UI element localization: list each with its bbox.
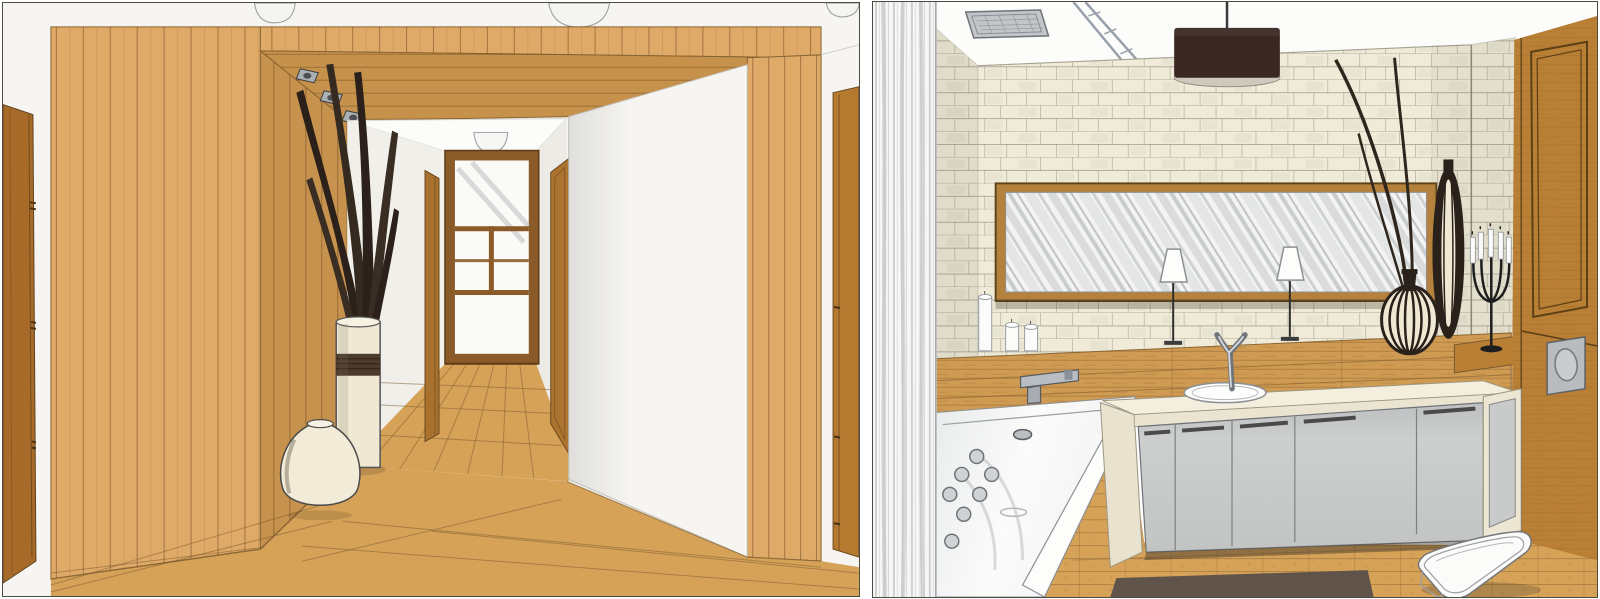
tub-drain (1014, 430, 1032, 440)
wood-panel-wall (51, 27, 261, 579)
mirror (996, 183, 1437, 309)
hallway-side-door (551, 158, 569, 453)
mirror-shadow (996, 299, 1437, 309)
flush-plate (1547, 337, 1585, 395)
renderings-stage (0, 0, 1600, 599)
vanity-cabinet (1138, 403, 1485, 560)
ceiling-vent (966, 10, 1049, 38)
hallway-rendering-panel (2, 2, 860, 597)
bathroom-rendering (873, 2, 1597, 597)
left-partial-door (3, 105, 36, 583)
bathroom-rendering-panel (872, 1, 1598, 598)
portal-right-jamb (747, 55, 821, 561)
hallway-rendering (3, 3, 859, 596)
hallway-narrow-door (425, 170, 439, 441)
wood-door-wall (1511, 16, 1597, 597)
shower-curtain (873, 2, 937, 597)
white-wall-volume (569, 65, 748, 557)
vanity-return-panel (1483, 389, 1521, 545)
glazed-door (445, 151, 539, 364)
vanity (1100, 381, 1521, 567)
